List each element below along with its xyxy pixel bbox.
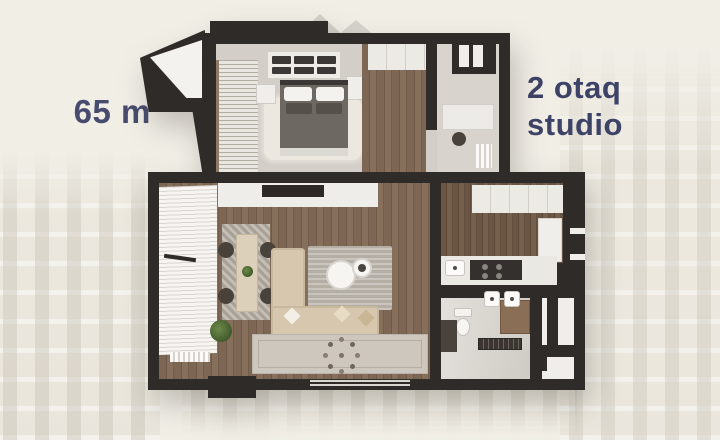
background-building-left (0, 150, 160, 440)
toilet-bowl (456, 318, 470, 336)
wall-window-slot (570, 254, 585, 260)
bed-pillow-dark (316, 103, 342, 114)
balcony-connector-wall (192, 108, 210, 176)
dining-chair (218, 288, 234, 304)
bed-pillow-dark (286, 103, 312, 114)
corner-step-bar (547, 298, 558, 347)
bed-foot-bench (280, 148, 348, 156)
coffee-table-tray (358, 264, 366, 272)
sofa-chaise (271, 248, 305, 314)
nightstand-left (256, 84, 276, 104)
stove (470, 260, 522, 280)
wall-window-slot (570, 228, 585, 234)
table-plant (242, 266, 253, 277)
bottom-rug (252, 334, 428, 374)
kitchen-sink (445, 260, 465, 276)
desk-chair (452, 132, 466, 146)
kitchen-partition-wall (430, 183, 441, 379)
dresser-console (268, 52, 340, 78)
shower-drain (478, 338, 522, 350)
shaft-slot (459, 45, 469, 67)
threshold-line (310, 384, 410, 386)
partition-wall (426, 44, 437, 130)
floor-plant (210, 320, 232, 342)
bottom-wall-bump (208, 376, 256, 398)
washing-machine (441, 320, 457, 352)
toilet-tank (454, 308, 472, 317)
bed-headboard (280, 80, 348, 85)
page: { "page": { "background_color": "#f1eee6… (0, 0, 720, 440)
bathroom-sink (484, 291, 500, 307)
tv (262, 185, 324, 197)
top-wall-bump (210, 21, 328, 39)
bed-pillow (284, 87, 312, 101)
desk (442, 104, 494, 130)
floor-decor (339, 353, 344, 358)
dining-chair (218, 242, 234, 258)
bed-pillow (316, 87, 344, 101)
bed (280, 80, 348, 156)
shaft-slot (473, 45, 483, 67)
bathroom-sink (504, 291, 520, 307)
stove-burners (482, 264, 488, 270)
corner-step-bar (532, 345, 585, 357)
radiator (476, 144, 492, 168)
floor-plan (140, 8, 592, 408)
corner-step-bar (537, 357, 547, 371)
threshold-line (310, 380, 410, 382)
wardrobe (216, 60, 258, 172)
hallway-cabinet (368, 44, 426, 70)
kitchen-cabinets (472, 185, 563, 213)
bench (170, 352, 210, 362)
window-blinds (159, 185, 217, 355)
